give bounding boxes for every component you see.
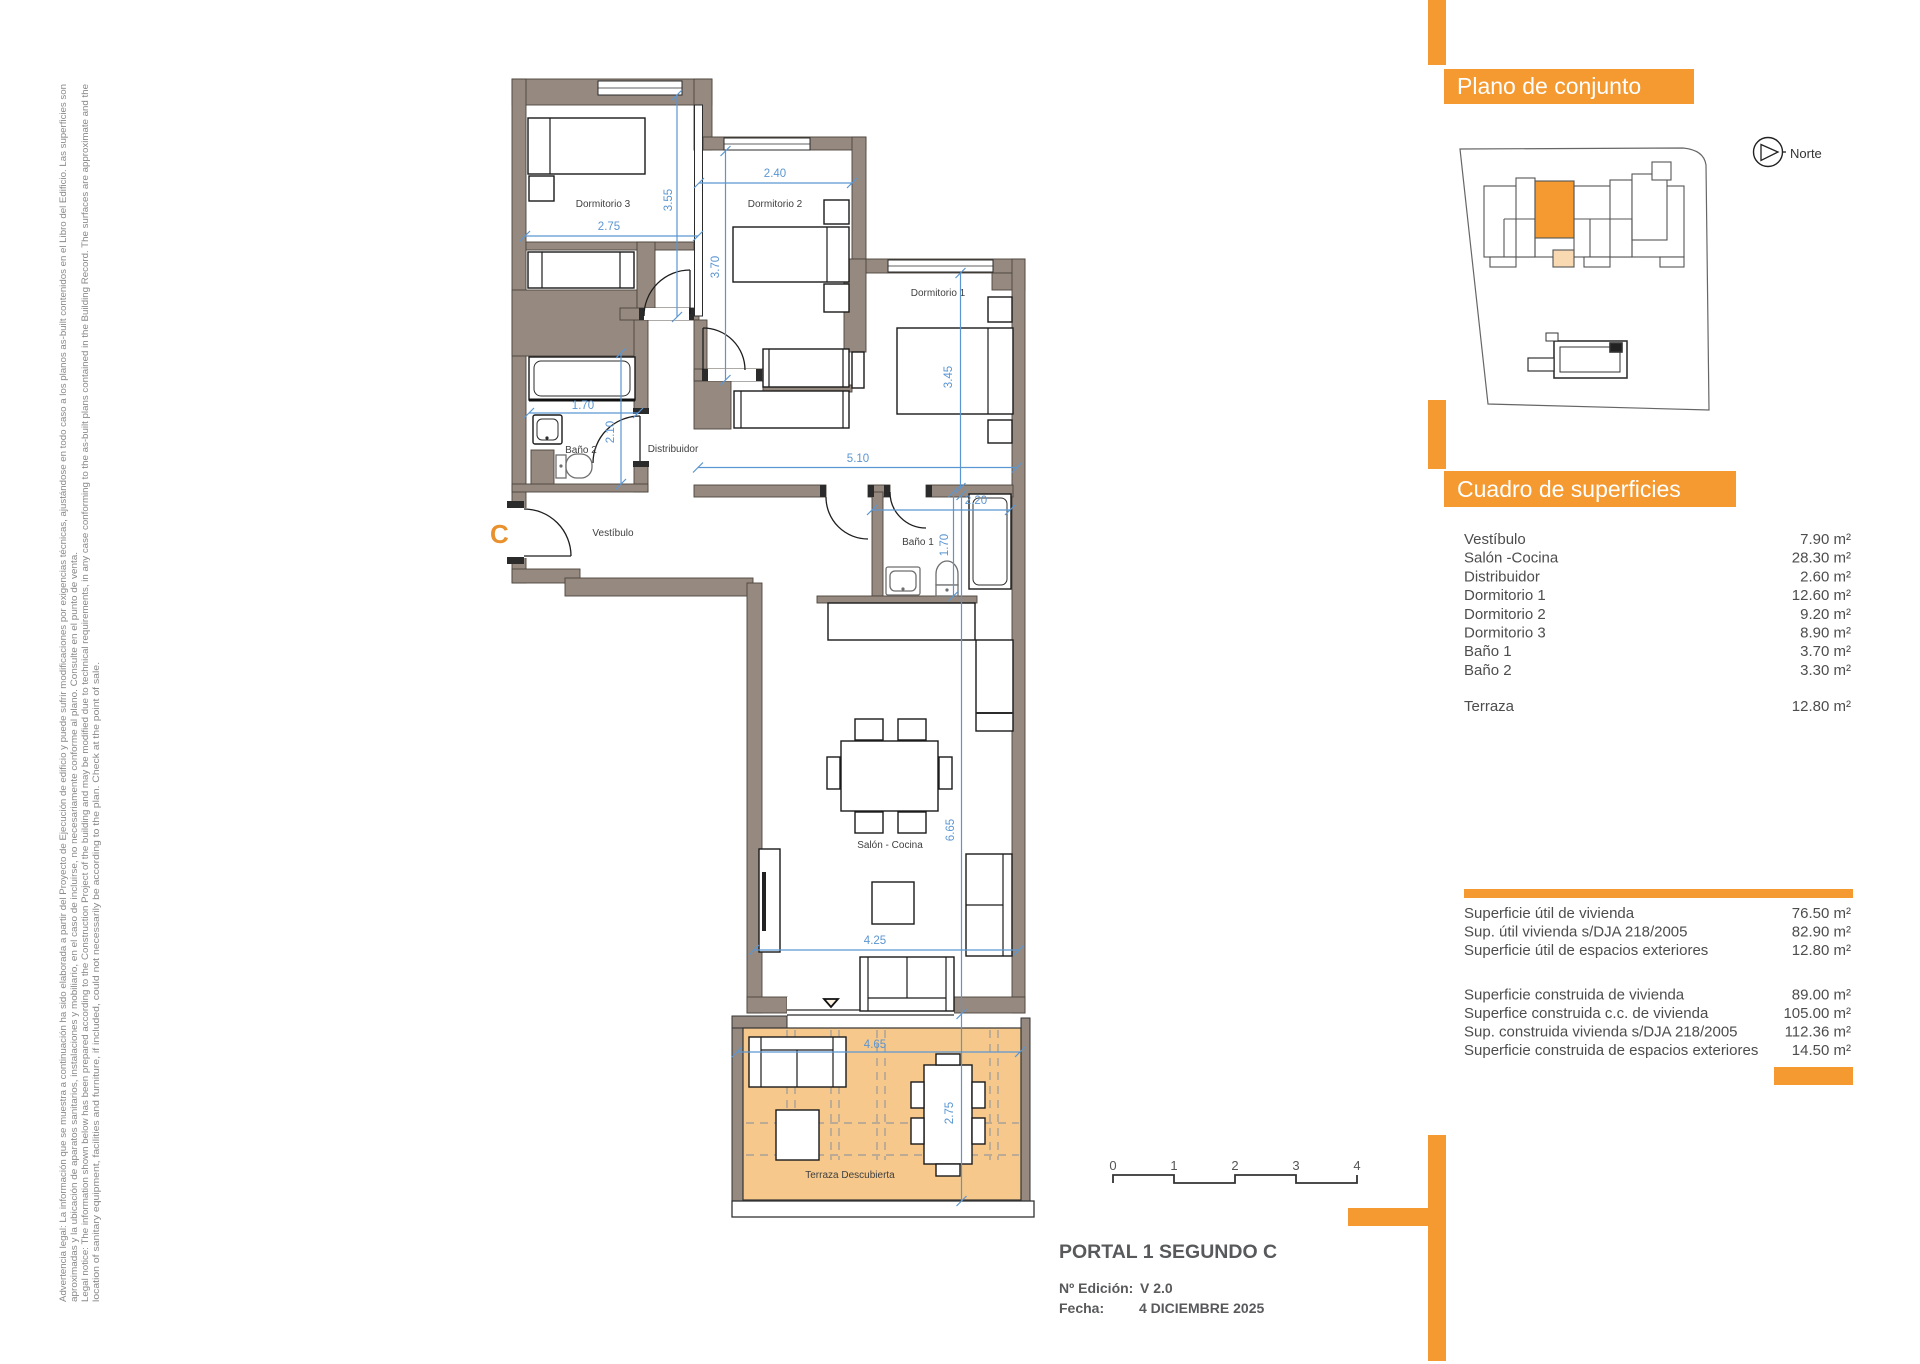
svg-text:Salón - Cocina: Salón - Cocina bbox=[857, 840, 923, 851]
svg-text:1.70: 1.70 bbox=[572, 400, 594, 412]
svg-text:Terraza: Terraza bbox=[1464, 698, 1515, 715]
svg-text:2: 2 bbox=[1231, 1158, 1238, 1173]
svg-text:9.20 m²: 9.20 m² bbox=[1800, 606, 1851, 623]
svg-text:Superficie construida de vivie: Superficie construida de vivienda bbox=[1464, 987, 1685, 1004]
svg-text:Superficie útil de vivienda: Superficie útil de vivienda bbox=[1464, 905, 1635, 922]
svg-text:Distribuidor: Distribuidor bbox=[1464, 568, 1540, 585]
svg-text:Dormitorio 2: Dormitorio 2 bbox=[748, 199, 803, 210]
svg-text:Salón -Cocina: Salón -Cocina bbox=[1464, 550, 1559, 567]
svg-text:C: C bbox=[490, 519, 509, 549]
svg-text:3.70: 3.70 bbox=[710, 256, 722, 278]
svg-text:4: 4 bbox=[1353, 1158, 1360, 1173]
svg-text:105.00 m²: 105.00 m² bbox=[1783, 1005, 1851, 1022]
svg-text:28.30 m²: 28.30 m² bbox=[1792, 550, 1851, 567]
svg-text:Sup. útil vivienda s/DJA 218/2: Sup. útil vivienda s/DJA 218/2005 bbox=[1464, 924, 1687, 941]
svg-text:Dormitorio 1: Dormitorio 1 bbox=[1464, 587, 1546, 604]
svg-text:Nº Edición:: Nº Edición: bbox=[1059, 1280, 1133, 1296]
svg-text:Baño 2: Baño 2 bbox=[565, 445, 597, 456]
svg-text:Vestíbulo: Vestíbulo bbox=[592, 528, 634, 539]
svg-text:Advertencia legal: La informac: Advertencia legal: La información que se… bbox=[58, 84, 68, 1302]
svg-text:3.55: 3.55 bbox=[663, 189, 675, 211]
svg-text:8.90 m²: 8.90 m² bbox=[1800, 625, 1851, 642]
svg-text:2.75: 2.75 bbox=[944, 1102, 956, 1124]
svg-text:3: 3 bbox=[1292, 1158, 1299, 1173]
svg-text:6.65: 6.65 bbox=[945, 819, 957, 841]
svg-text:89.00 m²: 89.00 m² bbox=[1792, 987, 1851, 1004]
svg-text:Terraza Descubierta: Terraza Descubierta bbox=[805, 1170, 895, 1181]
svg-text:7.90 m²: 7.90 m² bbox=[1800, 531, 1851, 548]
svg-text:1: 1 bbox=[1170, 1158, 1177, 1173]
svg-text:82.90 m²: 82.90 m² bbox=[1792, 924, 1851, 941]
svg-text:3.45: 3.45 bbox=[943, 366, 955, 388]
svg-text:Dormitorio 1: Dormitorio 1 bbox=[911, 288, 966, 299]
svg-text:Superficie útil de espacios ex: Superficie útil de espacios exteriores bbox=[1464, 942, 1708, 959]
svg-text:5.10: 5.10 bbox=[847, 453, 869, 465]
svg-text:Baño 1: Baño 1 bbox=[1464, 643, 1512, 660]
svg-text:Plano de conjunto: Plano de conjunto bbox=[1457, 73, 1641, 99]
svg-text:0: 0 bbox=[1109, 1158, 1116, 1173]
svg-text:12.80 m²: 12.80 m² bbox=[1792, 698, 1851, 715]
svg-text:Cuadro de superficies: Cuadro de superficies bbox=[1457, 476, 1681, 502]
svg-text:2.40: 2.40 bbox=[764, 168, 786, 180]
svg-text:Vestíbulo: Vestíbulo bbox=[1464, 531, 1526, 548]
svg-text:4.65: 4.65 bbox=[864, 1039, 886, 1051]
svg-text:Fecha:: Fecha: bbox=[1059, 1300, 1104, 1316]
svg-text:Legal notice: The information: Legal notice: The information shown belo… bbox=[80, 84, 90, 1302]
svg-text:V 2.0: V 2.0 bbox=[1140, 1280, 1173, 1296]
svg-text:14.50 m²: 14.50 m² bbox=[1792, 1042, 1851, 1059]
svg-text:aproximadas y la ubicación de: aproximadas y la ubicación de aparatos s… bbox=[69, 552, 79, 1302]
svg-text:3.70 m²: 3.70 m² bbox=[1800, 643, 1851, 660]
svg-text:112.36 m²: 112.36 m² bbox=[1785, 1024, 1851, 1041]
svg-text:4 DICIEMBRE 2025: 4 DICIEMBRE 2025 bbox=[1139, 1300, 1264, 1316]
svg-text:2.20: 2.20 bbox=[965, 495, 987, 507]
svg-text:2.60 m²: 2.60 m² bbox=[1800, 568, 1851, 585]
svg-text:4.25: 4.25 bbox=[864, 935, 886, 947]
svg-text:Sup. construida vivienda s/DJA: Sup. construida vivienda s/DJA 218/2005 bbox=[1464, 1024, 1738, 1041]
svg-text:3.30 m²: 3.30 m² bbox=[1800, 662, 1851, 679]
svg-text:Baño 1: Baño 1 bbox=[902, 537, 934, 548]
svg-text:Dormitorio 3: Dormitorio 3 bbox=[576, 199, 631, 210]
svg-text:76.50 m²: 76.50 m² bbox=[1792, 905, 1851, 922]
svg-text:12.80 m²: 12.80 m² bbox=[1792, 942, 1851, 959]
svg-text:Dormitorio 3: Dormitorio 3 bbox=[1464, 625, 1546, 642]
svg-text:PORTAL 1 SEGUNDO C: PORTAL 1 SEGUNDO C bbox=[1059, 1241, 1277, 1263]
svg-text:2.75: 2.75 bbox=[598, 221, 620, 233]
svg-text:12.60 m²: 12.60 m² bbox=[1792, 587, 1851, 604]
svg-text:Dormitorio 2: Dormitorio 2 bbox=[1464, 606, 1546, 623]
svg-text:Distribuidor: Distribuidor bbox=[648, 444, 699, 455]
svg-text:1.70: 1.70 bbox=[939, 534, 951, 556]
svg-text:location of sanitary equipment: location of sanitary equipment, faciliti… bbox=[91, 662, 101, 1302]
svg-text:Superficie construida de espac: Superficie construida de espacios exteri… bbox=[1464, 1042, 1758, 1059]
svg-text:Baño 2: Baño 2 bbox=[1464, 662, 1512, 679]
svg-text:Superfice construida c.c. de v: Superfice construida c.c. de vivienda bbox=[1464, 1005, 1709, 1022]
svg-text:Norte: Norte bbox=[1790, 146, 1822, 161]
svg-text:2.10: 2.10 bbox=[605, 421, 617, 443]
